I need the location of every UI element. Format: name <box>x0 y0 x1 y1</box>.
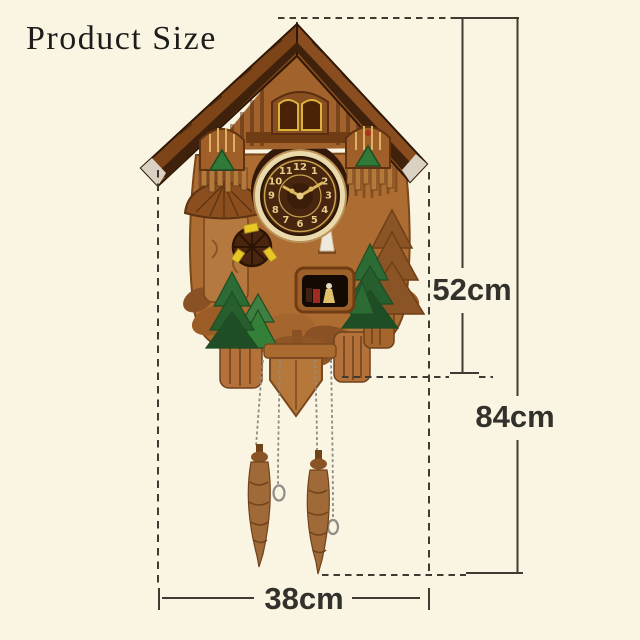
clock-numeral: 4 <box>321 205 328 216</box>
total-height-label: 84cm <box>471 401 559 432</box>
dancer-figure <box>313 289 320 303</box>
clock-face: 121234567891011 <box>251 141 349 242</box>
right-weight <box>307 450 329 574</box>
body-height-dimension-line <box>450 18 479 373</box>
cuckoo-door <box>272 92 328 134</box>
width-label: 38cm <box>258 583 350 614</box>
dormer-red-dot <box>365 130 371 136</box>
clock-numeral: 9 <box>268 191 275 202</box>
body-height-label: 52cm <box>430 274 514 305</box>
clock-numeral: 3 <box>325 191 332 202</box>
clock-numeral: 12 <box>293 162 307 173</box>
left-weight <box>248 444 270 567</box>
chain-ring <box>274 486 285 501</box>
clock-numeral: 11 <box>279 166 293 177</box>
clock-numeral: 8 <box>272 205 279 216</box>
clock-numeral: 5 <box>311 215 318 226</box>
chain-ring <box>328 520 338 534</box>
product-size-diagram: Product Size <box>0 0 640 640</box>
clock-numeral: 10 <box>268 176 282 187</box>
dancer-figure <box>306 288 312 302</box>
clock-numeral: 1 <box>311 166 318 177</box>
cuckoo-clock-illustration: 121234567891011 <box>0 0 640 640</box>
dancer-alcove <box>296 268 354 312</box>
clock-numeral: 6 <box>297 219 304 230</box>
clock-numeral: 7 <box>282 215 289 226</box>
